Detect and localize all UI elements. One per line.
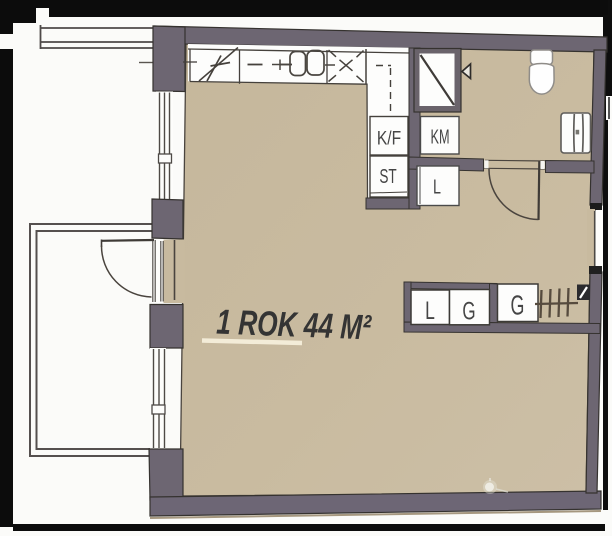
svg-text:G: G — [511, 290, 525, 321]
svg-text:ST: ST — [379, 165, 397, 187]
svg-text:KM: KM — [430, 125, 449, 148]
svg-text:G: G — [462, 297, 475, 325]
svg-text:L: L — [425, 296, 435, 325]
svg-text:L: L — [433, 175, 441, 198]
svg-text:1 ROK 44 M²: 1 ROK 44 M² — [216, 302, 373, 348]
svg-text:K/F: K/F — [377, 127, 401, 149]
